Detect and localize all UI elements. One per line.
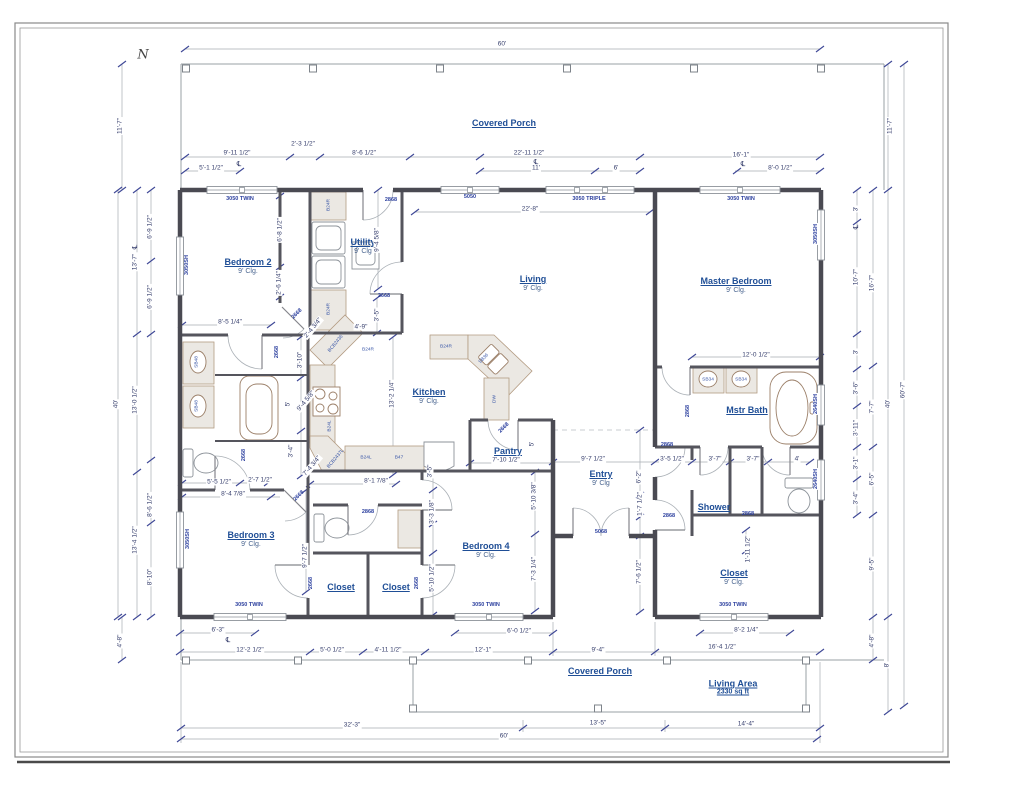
floor-plan-drawing <box>0 0 1024 791</box>
floor-plan-page: { "title": "Residential Floor Plan", "no… <box>0 0 1024 791</box>
north-arrow: N <box>137 48 148 63</box>
cabinets <box>183 192 757 548</box>
